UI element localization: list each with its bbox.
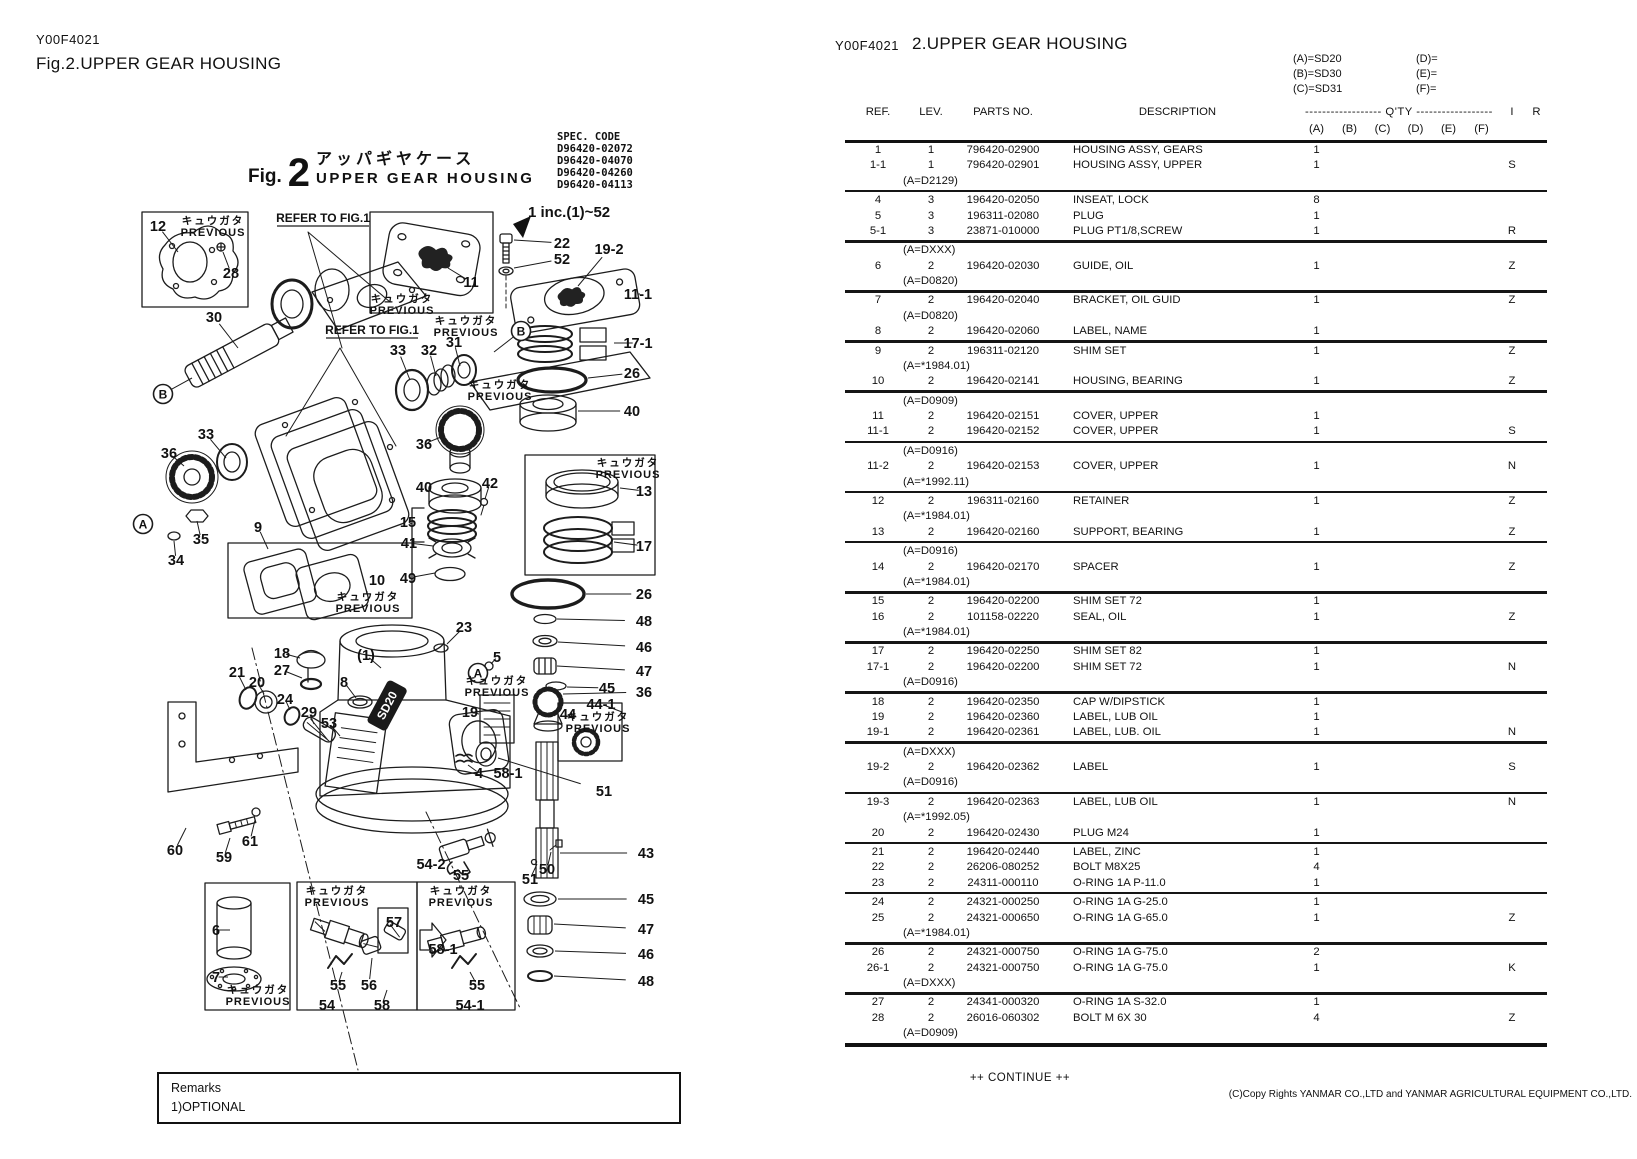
i-cell — [1498, 209, 1526, 224]
qty-d-cell — [1399, 644, 1432, 659]
qty-d-cell — [1399, 961, 1432, 976]
note-row: (A=*1984.01) — [845, 926, 1547, 941]
qty-d-cell — [1399, 158, 1432, 173]
ref-cell: 25 — [845, 911, 911, 926]
qty-f-cell — [1465, 1011, 1498, 1026]
desc-cell: O-RING 1A G-65.0 — [1055, 911, 1300, 926]
note-row: (A=D0916) — [845, 444, 1547, 459]
qty-a-cell: 1 — [1300, 324, 1333, 339]
qty-d-cell — [1399, 695, 1432, 710]
callout-label: 8 — [340, 675, 348, 691]
note-row: (A=DXXX) — [845, 243, 1547, 258]
r-cell — [1526, 459, 1547, 474]
table-row: 172196420-02250SHIM SET 821 — [845, 644, 1547, 659]
ref-cell: 19-3 — [845, 795, 911, 810]
applicability-note: (A=D0916) — [845, 444, 1547, 459]
parts-no-cell: 196311-02160 — [951, 494, 1055, 509]
group-rule — [845, 591, 1547, 594]
qty-c-cell — [1366, 594, 1399, 609]
qty-e-cell — [1432, 610, 1465, 625]
callout-label: 22 — [554, 236, 570, 252]
qty-d-cell — [1399, 424, 1432, 439]
qty-b-cell — [1333, 374, 1366, 389]
callout-label: 26 — [636, 587, 652, 603]
i-cell: N — [1498, 725, 1526, 740]
r-cell — [1526, 610, 1547, 625]
leader-line — [567, 687, 598, 688]
callout-label: 7 — [212, 970, 220, 986]
qty-f-cell — [1465, 409, 1498, 424]
washer-61 — [252, 808, 260, 816]
qty-a-cell: 1 — [1300, 293, 1333, 308]
qty-d-cell — [1399, 193, 1432, 208]
qty-d-cell — [1399, 710, 1432, 725]
ref-cell: 19-1 — [845, 725, 911, 740]
table-row: 19-22196420-02362LABEL1S — [845, 760, 1547, 775]
i-cell: Z — [1498, 494, 1526, 509]
col-qty: ------------------ Q'TY ----------------… — [1300, 104, 1498, 121]
i-cell — [1498, 594, 1526, 609]
spacer — [1526, 121, 1547, 138]
ref-cell: 11-2 — [845, 459, 911, 474]
qty-d-cell — [1399, 610, 1432, 625]
qty-b-cell — [1333, 795, 1366, 810]
desc-cell: SHIM SET — [1055, 344, 1300, 359]
group-rule — [845, 842, 1547, 845]
qty-b-cell — [1333, 324, 1366, 339]
lev-cell: 2 — [911, 660, 951, 675]
callout-label: 33 — [390, 343, 406, 359]
nut-35 — [186, 510, 208, 522]
desc-cell: PLUG M24 — [1055, 826, 1300, 841]
parts-no-cell: 196311-02120 — [951, 344, 1055, 359]
lev-cell: 2 — [911, 409, 951, 424]
qty-f-cell — [1465, 826, 1498, 841]
qty-subheader: (A)(B)(C)(D)(E)(F) — [845, 121, 1547, 138]
applicability-note: (A=D0909) — [845, 1026, 1547, 1041]
parts-no-cell: 196420-02430 — [951, 826, 1055, 841]
lev-cell: 2 — [911, 644, 951, 659]
applicability-note: (A=D2129) — [845, 174, 1547, 189]
i-cell: Z — [1498, 374, 1526, 389]
qty-a-cell: 1 — [1300, 826, 1333, 841]
desc-cell: LABEL, NAME — [1055, 324, 1300, 339]
qty-a-cell: 1 — [1300, 961, 1333, 976]
qty-f-cell — [1465, 293, 1498, 308]
r-cell — [1526, 895, 1547, 910]
applicability-note: (A=D0820) — [845, 309, 1547, 324]
desc-cell: COVER, UPPER — [1055, 409, 1300, 424]
qty-b-cell — [1333, 961, 1366, 976]
qty-b-cell — [1333, 293, 1366, 308]
applicability-note: (A=*1992.11) — [845, 475, 1547, 490]
bevel-gear-36c — [535, 689, 561, 715]
qty-a-cell: 1 — [1300, 644, 1333, 659]
callout-label: 13 — [636, 484, 652, 500]
qty-f-cell — [1465, 725, 1498, 740]
qty-c-cell — [1366, 845, 1399, 860]
note-row: (A=D0916) — [845, 544, 1547, 559]
ref-cell: 24 — [845, 895, 911, 910]
lev-cell: 3 — [911, 209, 951, 224]
remarks-box: Remarks 1)OPTIONAL — [157, 1072, 681, 1124]
callout-label: 45 — [638, 892, 654, 908]
qty-a-cell: 1 — [1300, 143, 1333, 158]
qty-a-cell: 1 — [1300, 344, 1333, 359]
callout-label: 36 — [636, 685, 652, 701]
r-cell — [1526, 158, 1547, 173]
qty-b-cell — [1333, 860, 1366, 875]
continue-note: ++ CONTINUE ++ — [840, 1072, 1200, 1084]
i-cell: Z — [1498, 344, 1526, 359]
pinion-shaft-30 — [183, 314, 295, 389]
callout-label: 28 — [223, 266, 239, 282]
callout-label: 57 — [386, 915, 402, 931]
qty-e-cell — [1432, 695, 1465, 710]
previous-label-en: PREVIOUS — [566, 723, 631, 735]
note-row: (A=*1984.01) — [845, 359, 1547, 374]
callout-label: 30 — [206, 310, 222, 326]
callout-label: 59 — [216, 850, 232, 866]
callout-label: 42 — [482, 476, 498, 492]
lev-cell: 2 — [911, 560, 951, 575]
previous-label-jp: キュウガタ — [371, 292, 434, 305]
qty-b-cell — [1333, 995, 1366, 1010]
qty-a-cell: 1 — [1300, 710, 1333, 725]
qty-f-cell — [1465, 895, 1498, 910]
i-cell: Z — [1498, 911, 1526, 926]
o-ring-48b — [528, 971, 552, 981]
qty-d-cell — [1399, 409, 1432, 424]
variant-codes-right: (D)=(E)=(F)= — [1416, 52, 1438, 97]
note-row: (A=DXXX) — [845, 745, 1547, 760]
callout-label: 60 — [167, 843, 183, 859]
parts-no-cell: 196311-02080 — [951, 209, 1055, 224]
desc-cell: COVER, UPPER — [1055, 459, 1300, 474]
ref-cell: 22 — [845, 860, 911, 875]
col-ref: REF. — [845, 104, 911, 121]
qty-e-cell — [1432, 860, 1465, 875]
note-row: (A=DXXX) — [845, 976, 1547, 991]
r-cell — [1526, 826, 1547, 841]
qty-c-cell — [1366, 293, 1399, 308]
parts-no-cell: 196420-02250 — [951, 644, 1055, 659]
callout-label: 48 — [636, 614, 652, 630]
parts-no-cell: 26206-080252 — [951, 860, 1055, 875]
desc-cell: GUIDE, OIL — [1055, 259, 1300, 274]
washer-45b — [524, 892, 556, 906]
qty-b-cell — [1333, 494, 1366, 509]
qty-b-cell — [1333, 945, 1366, 960]
lev-cell: 2 — [911, 594, 951, 609]
desc-cell: RETAINER — [1055, 494, 1300, 509]
ref-cell: 14 — [845, 560, 911, 575]
parts-no-cell: 24321-000750 — [951, 945, 1055, 960]
parts-no-cell: 24321-000750 — [951, 961, 1055, 976]
qty-a-cell: 1 — [1300, 424, 1333, 439]
qty-d-cell — [1399, 324, 1432, 339]
desc-cell: SHIM SET 82 — [1055, 644, 1300, 659]
qty-d-cell — [1399, 995, 1432, 1010]
qty-f-cell — [1465, 660, 1498, 675]
washer-34 — [168, 532, 180, 540]
qty-c-cell — [1366, 525, 1399, 540]
r-cell — [1526, 560, 1547, 575]
r-cell — [1526, 911, 1547, 926]
desc-cell: COVER, UPPER — [1055, 424, 1300, 439]
qty-f-cell — [1465, 710, 1498, 725]
applicability-note: (A=D0916) — [845, 775, 1547, 790]
group-rule — [845, 190, 1547, 193]
qty-f-cell — [1465, 845, 1498, 860]
lev-cell: 2 — [911, 845, 951, 860]
qty-f-cell — [1465, 860, 1498, 875]
parts-no-cell: 196420-02360 — [951, 710, 1055, 725]
qty-c-cell — [1366, 695, 1399, 710]
parts-no-cell: 196420-02363 — [951, 795, 1055, 810]
remarks-title: Remarks — [171, 1079, 679, 1098]
table-row: 132196420-02160SUPPORT, BEARING1Z — [845, 525, 1547, 540]
col-r: R — [1526, 104, 1547, 121]
qty-e-cell — [1432, 725, 1465, 740]
i-cell: N — [1498, 459, 1526, 474]
qty-e-cell — [1432, 1011, 1465, 1026]
ref-cell: 26 — [845, 945, 911, 960]
group-rule — [845, 541, 1547, 544]
table-row: 202196420-02430PLUG M241 — [845, 826, 1547, 841]
qty-b-cell — [1333, 525, 1366, 540]
qty-d-cell — [1399, 795, 1432, 810]
qty-f-cell — [1465, 945, 1498, 960]
ref-cell: 28 — [845, 1011, 911, 1026]
qty-d-cell — [1399, 911, 1432, 926]
callout-label: 15 — [400, 515, 416, 531]
lev-cell: 2 — [911, 710, 951, 725]
qty-d-cell — [1399, 945, 1432, 960]
parts-no-cell: 196420-02030 — [951, 259, 1055, 274]
callout-label: 50 — [539, 862, 555, 878]
qty-b-cell — [1333, 424, 1366, 439]
r-cell — [1526, 695, 1547, 710]
qty-b-cell — [1333, 409, 1366, 424]
table-row: 142196420-02170SPACER1Z — [845, 560, 1547, 575]
previous-label-en: PREVIOUS — [336, 603, 401, 615]
i-cell — [1498, 143, 1526, 158]
ref-cell: 17-1 — [845, 660, 911, 675]
qty-a-cell: 2 — [1300, 945, 1333, 960]
o-ring-23 — [434, 644, 448, 652]
i-cell: R — [1498, 224, 1526, 239]
qty-f-cell — [1465, 644, 1498, 659]
callout-label: 10 — [369, 573, 385, 589]
qty-f-cell — [1465, 259, 1498, 274]
qty-c-cell — [1366, 209, 1399, 224]
r-cell — [1526, 259, 1547, 274]
callout-label: 40 — [624, 404, 640, 420]
i-cell — [1498, 193, 1526, 208]
qty-a-cell: 1 — [1300, 158, 1333, 173]
desc-cell: SPACER — [1055, 560, 1300, 575]
applicability-note: (A=*1984.01) — [845, 575, 1547, 590]
qty-a-cell: 1 — [1300, 525, 1333, 540]
desc-cell: CAP W/DIPSTICK — [1055, 695, 1300, 710]
qty-a-cell: 1 — [1300, 995, 1333, 1010]
callout-label: 55 — [330, 978, 346, 994]
page-title-right: 2.UPPER GEAR HOUSING — [912, 34, 1128, 54]
qty-c-cell — [1366, 644, 1399, 659]
qty-d-cell — [1399, 494, 1432, 509]
i-cell — [1498, 695, 1526, 710]
qty-f-cell — [1465, 193, 1498, 208]
bearing-33 — [396, 370, 428, 410]
qty-e-cell — [1432, 224, 1465, 239]
qty-b-cell — [1333, 710, 1366, 725]
variant-code: (D)= — [1416, 52, 1438, 67]
note-row: (A=*1992.11) — [845, 475, 1547, 490]
hook-55b — [328, 954, 352, 968]
qty-b-cell — [1333, 209, 1366, 224]
i-cell — [1498, 644, 1526, 659]
ref-cell: 7 — [845, 293, 911, 308]
group-rule — [845, 340, 1547, 343]
i-cell: Z — [1498, 560, 1526, 575]
qty-f-cell — [1465, 374, 1498, 389]
qty-e-cell — [1432, 324, 1465, 339]
qty-c-cell — [1366, 961, 1399, 976]
ring-49 — [435, 568, 465, 581]
table-row: 53196311-02080PLUG1 — [845, 209, 1547, 224]
ref-cell: 1-1 — [845, 158, 911, 173]
qty-b-cell — [1333, 911, 1366, 926]
lev-cell: 2 — [911, 525, 951, 540]
qty-b-cell — [1333, 594, 1366, 609]
lev-cell: 2 — [911, 725, 951, 740]
variant-code: (A)=SD20 — [1293, 52, 1342, 67]
ref-cell: 18 — [845, 695, 911, 710]
applicability-note: (A=DXXX) — [845, 976, 1547, 991]
qty-e-cell — [1432, 760, 1465, 775]
callout-label: 46 — [638, 947, 654, 963]
leader-line — [557, 619, 625, 621]
callout-label: 11-1 — [624, 287, 652, 303]
qty-c-cell — [1366, 324, 1399, 339]
qty-e-cell — [1432, 143, 1465, 158]
previous-label-en: PREVIOUS — [305, 897, 370, 909]
callout-label: 12 — [150, 219, 166, 235]
qty-e-cell — [1432, 826, 1465, 841]
previous-label-en: PREVIOUS — [465, 687, 530, 699]
lev-cell: 3 — [911, 224, 951, 239]
col-i: I — [1498, 104, 1526, 121]
ref-cell: 21 — [845, 845, 911, 860]
callout-label: 36 — [416, 437, 432, 453]
parts-no-cell: 196420-02170 — [951, 560, 1055, 575]
qty-a-cell: 1 — [1300, 845, 1333, 860]
applicability-note: (A=DXXX) — [845, 745, 1547, 760]
qty-a-cell: 1 — [1300, 224, 1333, 239]
qty-a-cell: 1 — [1300, 911, 1333, 926]
qty-col-label: (E) — [1432, 121, 1465, 138]
table-row: 92196311-02120SHIM SET1Z — [845, 344, 1547, 359]
qty-b-cell — [1333, 695, 1366, 710]
qty-e-cell — [1432, 344, 1465, 359]
o-ring-27 — [301, 679, 321, 689]
r-cell — [1526, 1011, 1547, 1026]
spacer — [1498, 121, 1526, 138]
refer-text: REFER TO FIG.1 — [325, 323, 419, 337]
i-cell — [1498, 860, 1526, 875]
bolt-22 — [500, 234, 512, 243]
applicability-note: (A=*1984.01) — [845, 926, 1547, 941]
qty-d-cell — [1399, 876, 1432, 891]
qty-b-cell — [1333, 644, 1366, 659]
callout-label: 5 — [493, 650, 501, 666]
r-cell — [1526, 845, 1547, 860]
ref-cell: 20 — [845, 826, 911, 841]
parts-no-cell: 796420-02900 — [951, 143, 1055, 158]
callout-label: 19 — [462, 705, 478, 721]
table-row: 17-12196420-02200SHIM SET 721N — [845, 660, 1547, 675]
qty-f-cell — [1465, 760, 1498, 775]
callout-label: 20 — [249, 675, 265, 691]
qty-b-cell — [1333, 845, 1366, 860]
i-cell — [1498, 324, 1526, 339]
previous-label-jp: キュウガタ — [337, 590, 400, 603]
ref-cell: 26-1 — [845, 961, 911, 976]
qty-d-cell — [1399, 1011, 1432, 1026]
lev-cell: 2 — [911, 911, 951, 926]
group-rule — [845, 741, 1547, 744]
group-rule — [845, 441, 1547, 444]
callout-label: 54-1 — [455, 998, 484, 1014]
table-row: 26-1224321-000750O-RING 1A G-75.01K — [845, 961, 1547, 976]
applicability-note: (A=*1992.05) — [845, 810, 1547, 825]
table-row: 62196420-02030GUIDE, OIL1Z — [845, 259, 1547, 274]
qty-e-cell — [1432, 995, 1465, 1010]
qty-b-cell — [1333, 344, 1366, 359]
parts-no-cell: 23871-010000 — [951, 224, 1055, 239]
qty-f-cell — [1465, 610, 1498, 625]
leader-line — [558, 642, 625, 646]
r-cell — [1526, 494, 1547, 509]
parts-no-cell: 196420-02160 — [951, 525, 1055, 540]
callout-label: 18 — [274, 646, 290, 662]
r-cell — [1526, 324, 1547, 339]
spacer — [845, 121, 911, 138]
leader-line — [554, 976, 626, 980]
qty-c-cell — [1366, 424, 1399, 439]
r-cell — [1526, 224, 1547, 239]
r-cell — [1526, 760, 1547, 775]
qty-f-cell — [1465, 158, 1498, 173]
r-cell — [1526, 143, 1547, 158]
table-row: 192196420-02360LABEL, LUB OIL1 — [845, 710, 1547, 725]
note-row: (A=*1984.01) — [845, 575, 1547, 590]
previous-label-en: PREVIOUS — [429, 897, 494, 909]
callout-label: 34 — [168, 553, 184, 569]
qty-f-cell — [1465, 795, 1498, 810]
qty-c-cell — [1366, 860, 1399, 875]
leader-line — [563, 692, 626, 694]
callout-label: 58 — [374, 998, 390, 1014]
desc-cell: O-RING 1A G-75.0 — [1055, 961, 1300, 976]
lev-cell: 2 — [911, 424, 951, 439]
variant-code: (C)=SD31 — [1293, 82, 1342, 97]
qty-e-cell — [1432, 795, 1465, 810]
qty-c-cell — [1366, 224, 1399, 239]
callout-label: 17-1 — [623, 336, 652, 352]
desc-cell: PLUG — [1055, 209, 1300, 224]
